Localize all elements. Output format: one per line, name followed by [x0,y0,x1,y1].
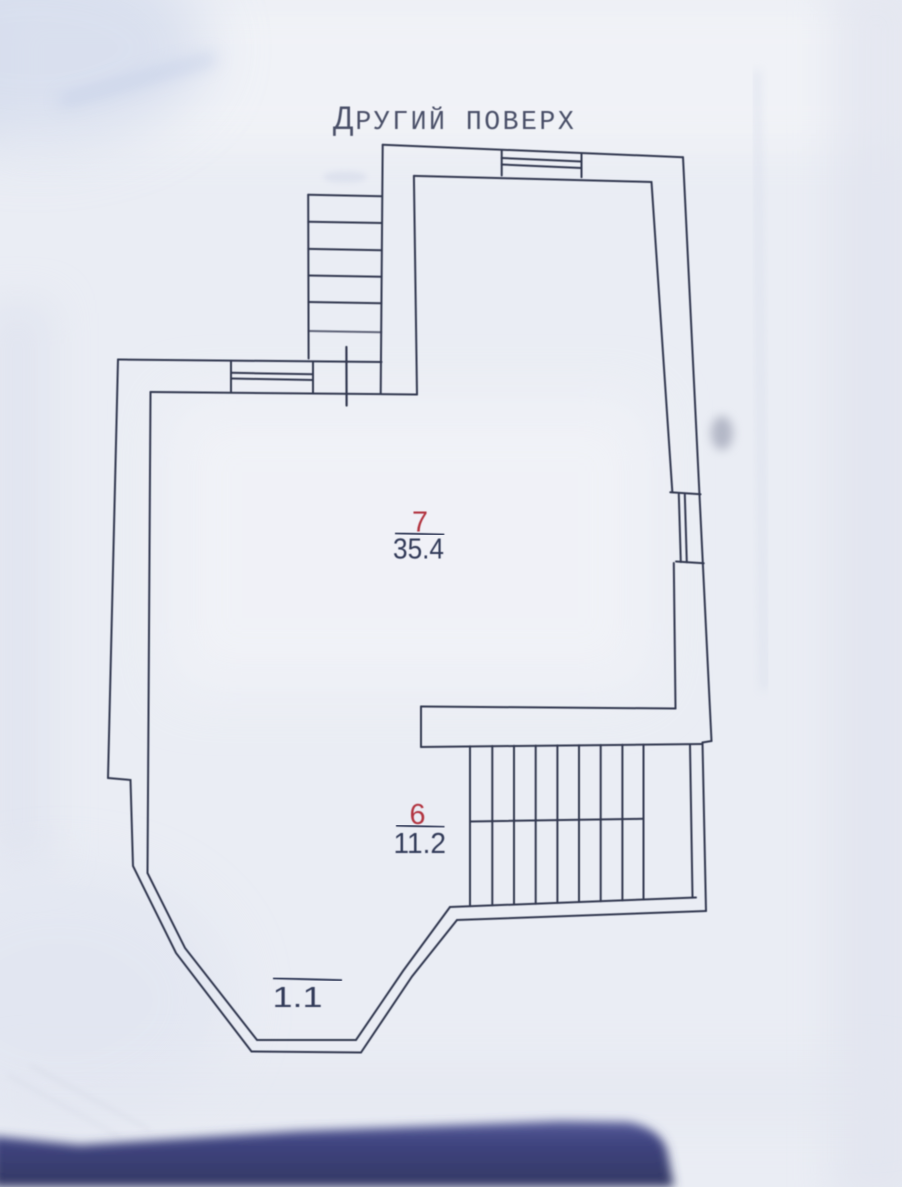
svg-text:35.4: 35.4 [393,534,444,566]
svg-text:1.1: 1.1 [273,982,323,1014]
svg-text:11.2: 11.2 [394,828,447,860]
svg-text:ДРУГИЙ ПОВЕРХ: ДРУГИЙ ПОВЕРХ [333,102,576,140]
